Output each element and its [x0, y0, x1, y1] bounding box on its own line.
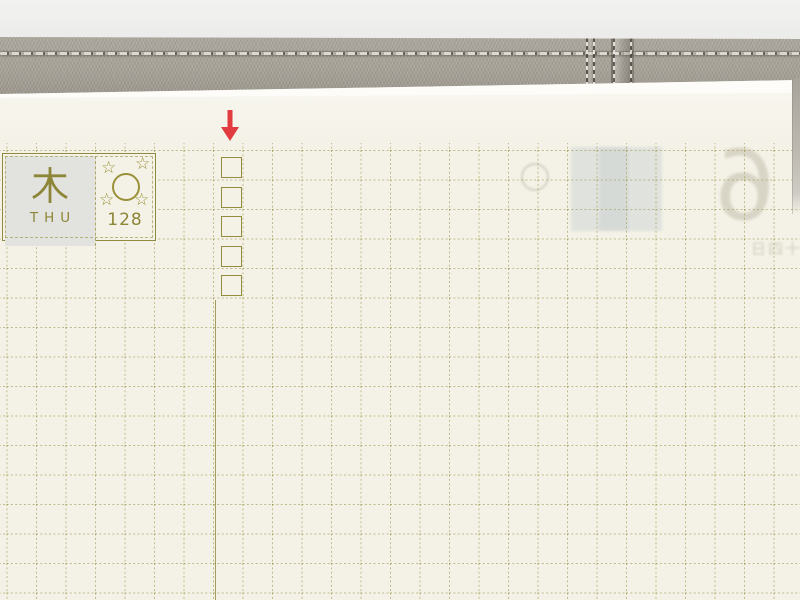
checkbox: [221, 216, 242, 237]
checkbox: [221, 157, 242, 178]
weekday-kanji-icon: [29, 164, 71, 206]
weekday-abbr: THU: [30, 210, 76, 226]
weekday-cell: THU: [5, 156, 96, 246]
star-icon: ☆: [135, 156, 150, 173]
cover-seam-1: [586, 34, 595, 90]
checkbox: [221, 275, 242, 296]
time-column-divider: [215, 300, 216, 600]
notebook-photo: 6 十四日: [0, 0, 800, 600]
checkbox: [221, 246, 242, 267]
checkbox-column: [221, 157, 243, 305]
day-count: 128: [95, 210, 155, 230]
cover-stitching: [0, 52, 800, 55]
moon-phase-icon: [112, 173, 140, 201]
star-icon: ☆: [99, 192, 114, 209]
cover-seam-2: [611, 34, 634, 90]
checkbox: [221, 187, 242, 208]
planner-page: 6 十四日: [0, 88, 800, 600]
red-arrow-icon: [218, 110, 242, 142]
star-icon: ☆: [101, 160, 116, 177]
cover-edge-sliver: [792, 78, 800, 214]
day-header-box: THU ☆ ☆ ☆ ☆ 128: [2, 153, 156, 241]
